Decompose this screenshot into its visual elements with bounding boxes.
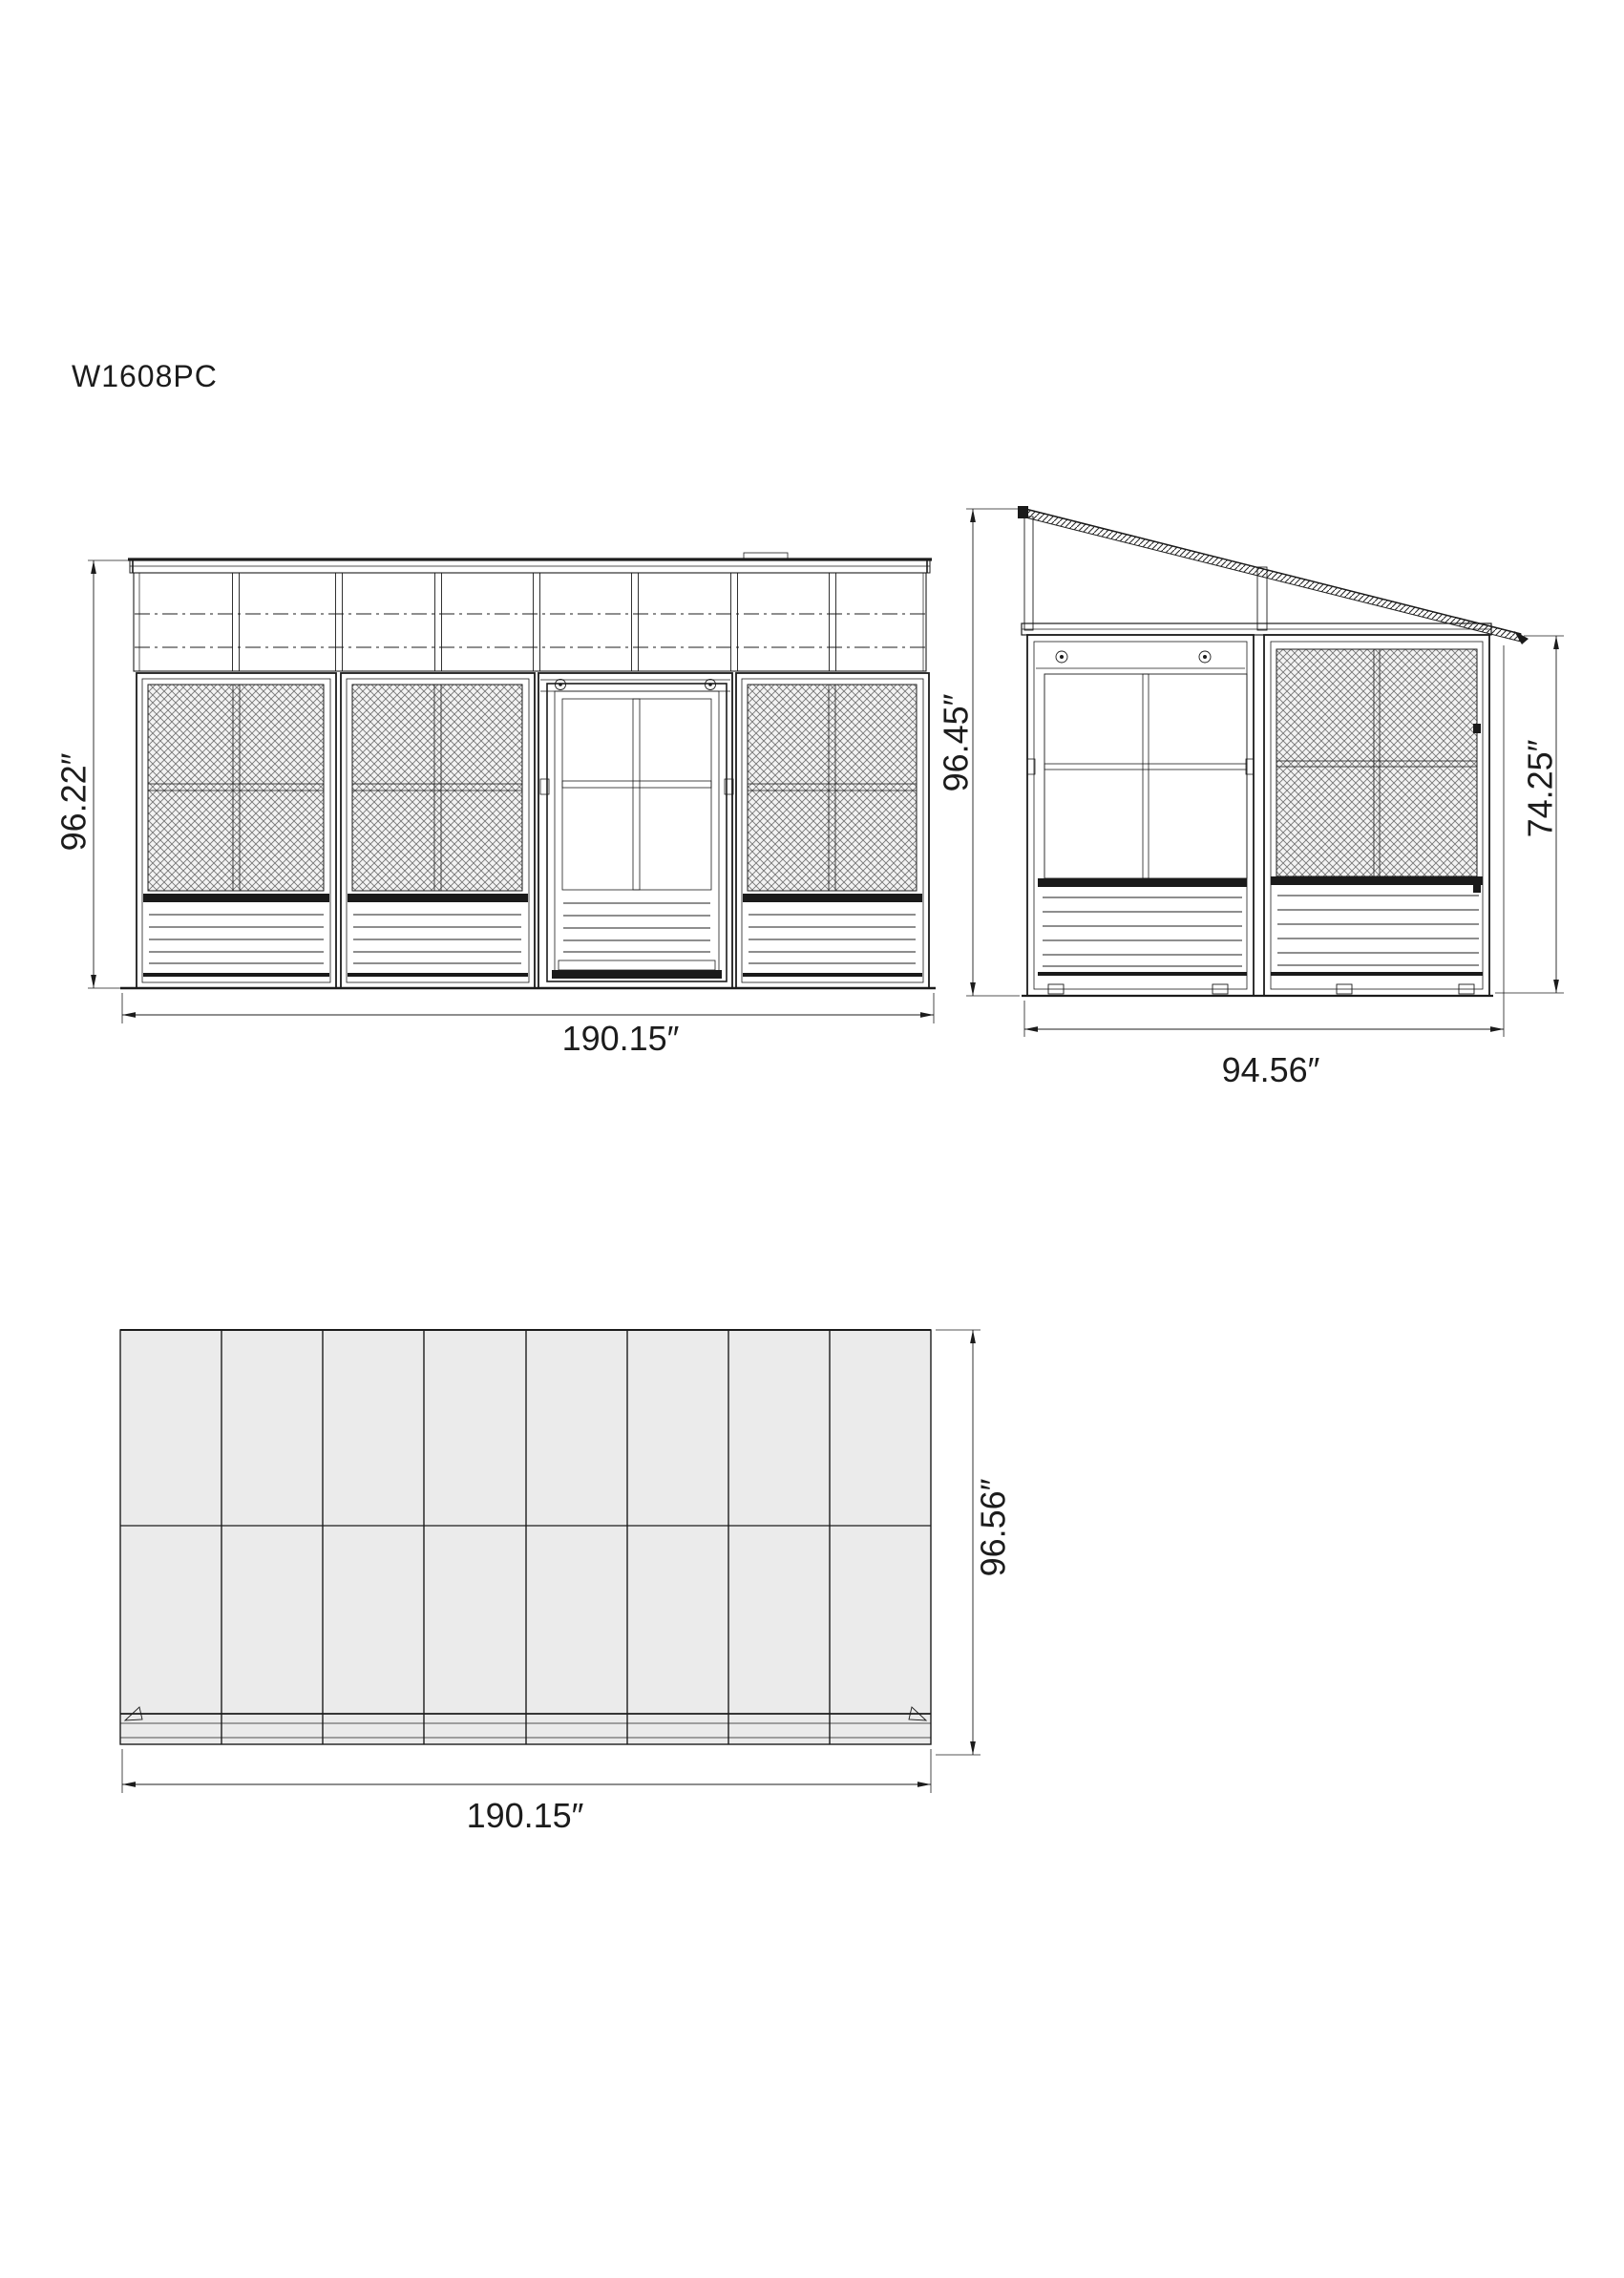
glass-panel: [1044, 674, 1247, 878]
door-center-mullion: [633, 699, 640, 890]
door-bottom-band: [559, 960, 715, 970]
roller-pin-icon: [1203, 655, 1207, 659]
roof-top-edge: [1022, 508, 1521, 634]
mesh-screen: [1276, 649, 1477, 876]
mullion: [534, 573, 540, 671]
kick-top-rail: [143, 894, 329, 902]
front-width-dim-label: 190.15″: [562, 1019, 680, 1058]
plan-depth-dim-label: 96.56″: [974, 1478, 1013, 1576]
roller-pin-icon: [1060, 655, 1064, 659]
roof-panel: [1022, 508, 1521, 642]
side-wall-height-dimension: 74.25″: [1495, 636, 1564, 993]
clerestory-frame: [134, 573, 926, 671]
door-lower-slats: [563, 903, 710, 952]
side-width-dim-label: 94.56″: [1222, 1050, 1320, 1089]
bay-frame: [538, 673, 732, 988]
side-mesh-bay: [1264, 635, 1489, 996]
front-mesh-bay-3: [736, 673, 929, 988]
kick-bottom-rail: [348, 973, 528, 977]
kick-top-rail: [348, 894, 528, 902]
kick-slats: [1277, 896, 1479, 965]
clerestory-mullions: [233, 573, 836, 671]
mullion: [632, 573, 639, 671]
front-elevation-view: 96.22″ 190.15″: [54, 553, 937, 1058]
mullion: [435, 573, 442, 671]
kick-slats: [1043, 897, 1242, 966]
glass-mid-rail: [1044, 764, 1247, 770]
kick-bottom-rail: [743, 973, 922, 977]
front-height-dimension: 96.22″: [54, 560, 129, 988]
door-mid-rail: [562, 781, 711, 788]
front-door-bay: [538, 673, 733, 988]
door-threshold: [552, 970, 722, 979]
kick-slats: [149, 915, 324, 963]
front-clerestory-band: [134, 573, 928, 671]
front-mesh-bay-2: [341, 673, 535, 988]
door-glass: [562, 699, 711, 890]
front-mesh-bay-1: [137, 673, 336, 988]
front-height-dim-label: 96.22″: [54, 752, 94, 851]
mesh-screen: [748, 685, 917, 891]
plan-width-dimension: 190.15″: [122, 1749, 931, 1835]
front-width-dimension: 190.15″: [122, 993, 934, 1058]
kick-bottom-rail: [1038, 972, 1247, 976]
door-header-track: [540, 680, 730, 691]
bay-inner-frame: [1034, 642, 1247, 989]
side-left-post: [1024, 517, 1033, 630]
kick-slats: [353, 915, 521, 963]
plan-depth-dimension: 96.56″: [936, 1330, 1013, 1755]
plan-width-dim-label: 190.15″: [467, 1796, 584, 1835]
bay-frame: [1027, 635, 1254, 996]
kick-top-rail: [743, 894, 922, 902]
drawing-title: W1608PC: [72, 359, 218, 393]
mullion: [233, 573, 240, 671]
mesh-screen: [148, 685, 324, 891]
roof-plan-view: 96.56″ 190.15″: [120, 1330, 1013, 1835]
mesh-screen: [352, 685, 522, 891]
door-inner-frame: [555, 691, 719, 974]
side-total-height-dimension: 96.45″: [937, 509, 1023, 996]
drawing-sheet: W1608PC: [0, 0, 1624, 2278]
glass-center-mullion: [1143, 674, 1149, 878]
kick-slats: [749, 915, 916, 963]
drawing-canvas: W1608PC: [0, 0, 1624, 2278]
side-glass-bay: [1027, 635, 1254, 996]
kick-bottom-rail: [143, 973, 329, 977]
side-elevation-view: 96.45″ 74.25″ 94.56″: [937, 506, 1565, 1089]
kick-top-rail: [1038, 878, 1247, 887]
side-total-height-dim-label: 96.45″: [937, 693, 976, 791]
latch-mark: [1473, 724, 1481, 733]
side-eave-plate: [1022, 623, 1491, 635]
mullion: [731, 573, 738, 671]
clerestory-edge-posts: [139, 573, 923, 671]
side-wall-height-dim-label: 74.25″: [1521, 739, 1560, 837]
front-roof-fascia: [128, 553, 932, 573]
kick-bottom-rail: [1271, 972, 1483, 976]
mullion: [336, 573, 343, 671]
door-outer-frame: [547, 684, 727, 981]
mullion: [830, 573, 836, 671]
kick-top-rail: [1271, 876, 1483, 885]
